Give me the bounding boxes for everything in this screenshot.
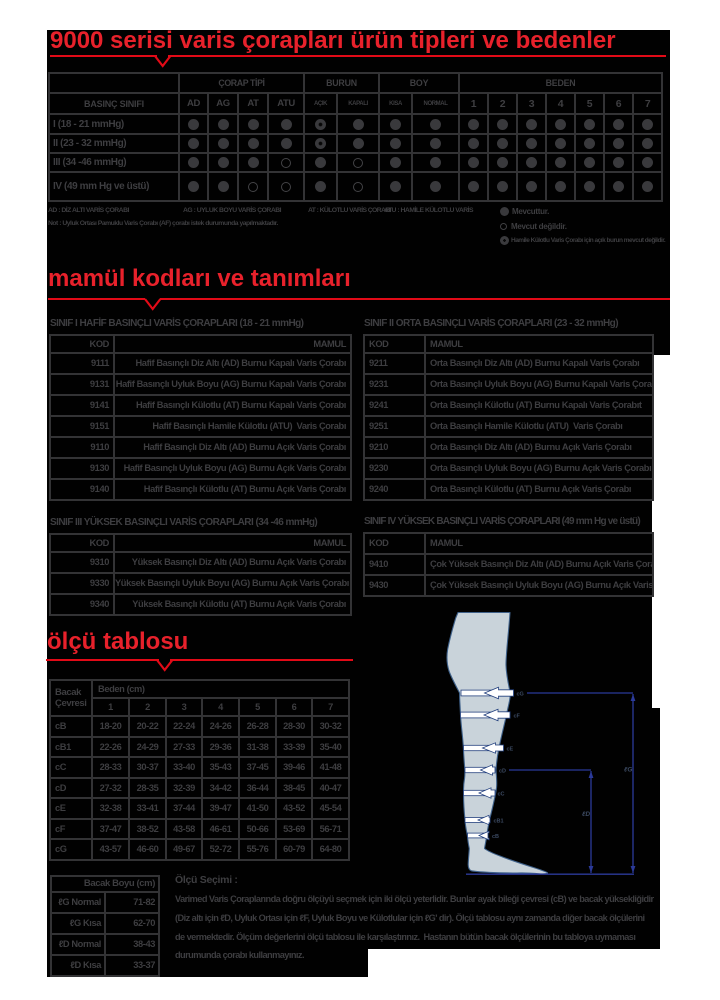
- svg-text:cE: cE: [507, 747, 514, 753]
- svg-text:cF: cF: [514, 714, 521, 720]
- svg-text:cC: cC: [498, 792, 505, 798]
- svg-text:cB1: cB1: [494, 819, 504, 825]
- svg-text:ℓD: ℓD: [581, 811, 590, 818]
- svg-text:cD: cD: [499, 769, 506, 775]
- svg-text:cG: cG: [517, 692, 524, 698]
- svg-text:cB: cB: [492, 834, 499, 840]
- svg-text:ℓG: ℓG: [623, 767, 632, 774]
